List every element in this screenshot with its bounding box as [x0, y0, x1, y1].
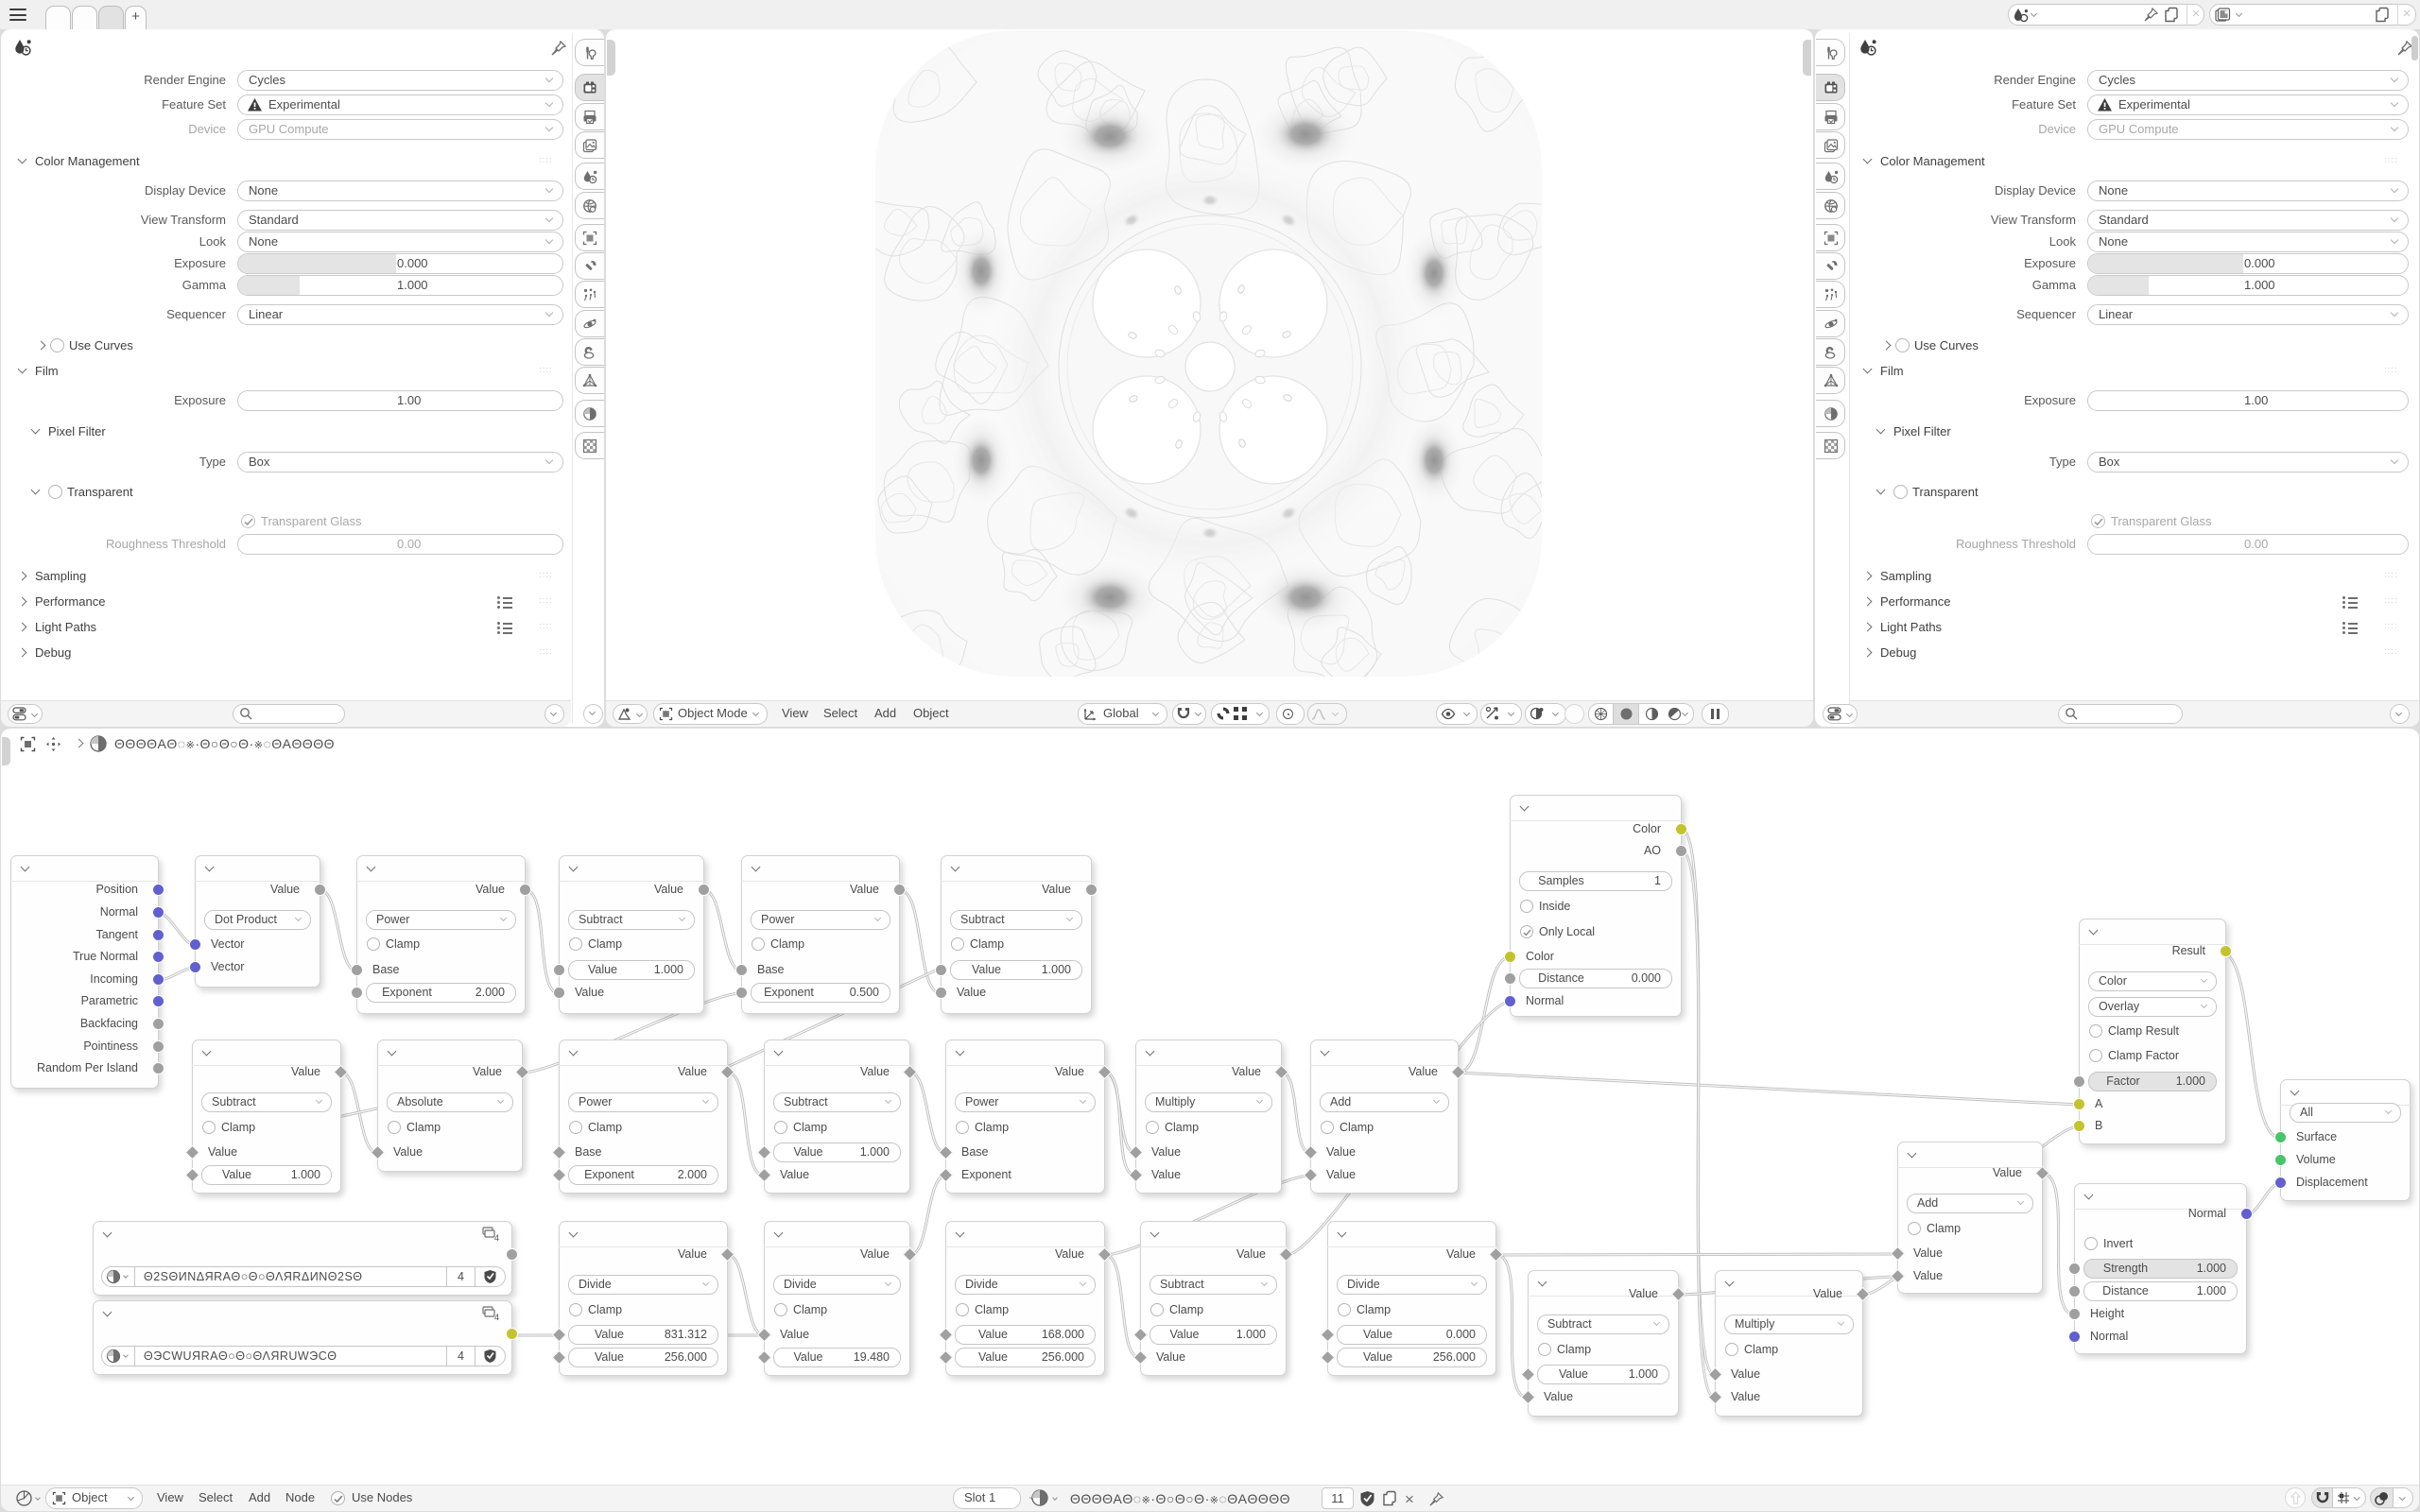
svg-text:4: 4	[494, 1313, 499, 1322]
svg-text:4: 4	[494, 1233, 499, 1243]
